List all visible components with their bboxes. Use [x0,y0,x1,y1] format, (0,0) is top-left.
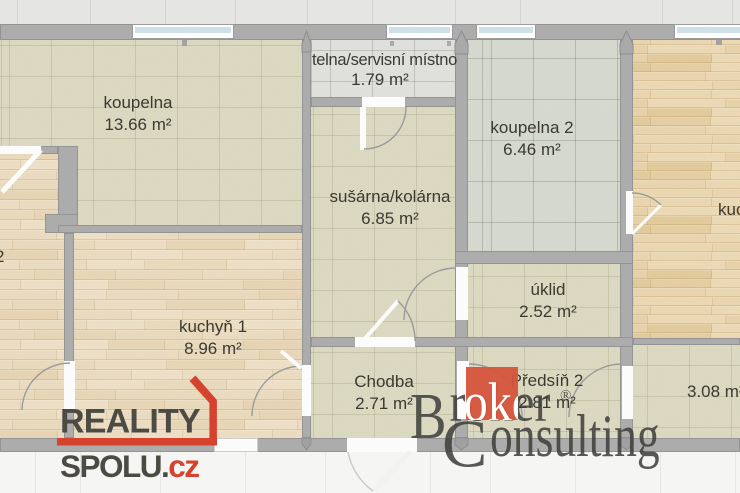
svg-text:SPOLU.cz: SPOLU.cz [60,448,199,484]
svg-text:®: ® [560,388,571,404]
svg-text:REALITY: REALITY [60,403,201,441]
